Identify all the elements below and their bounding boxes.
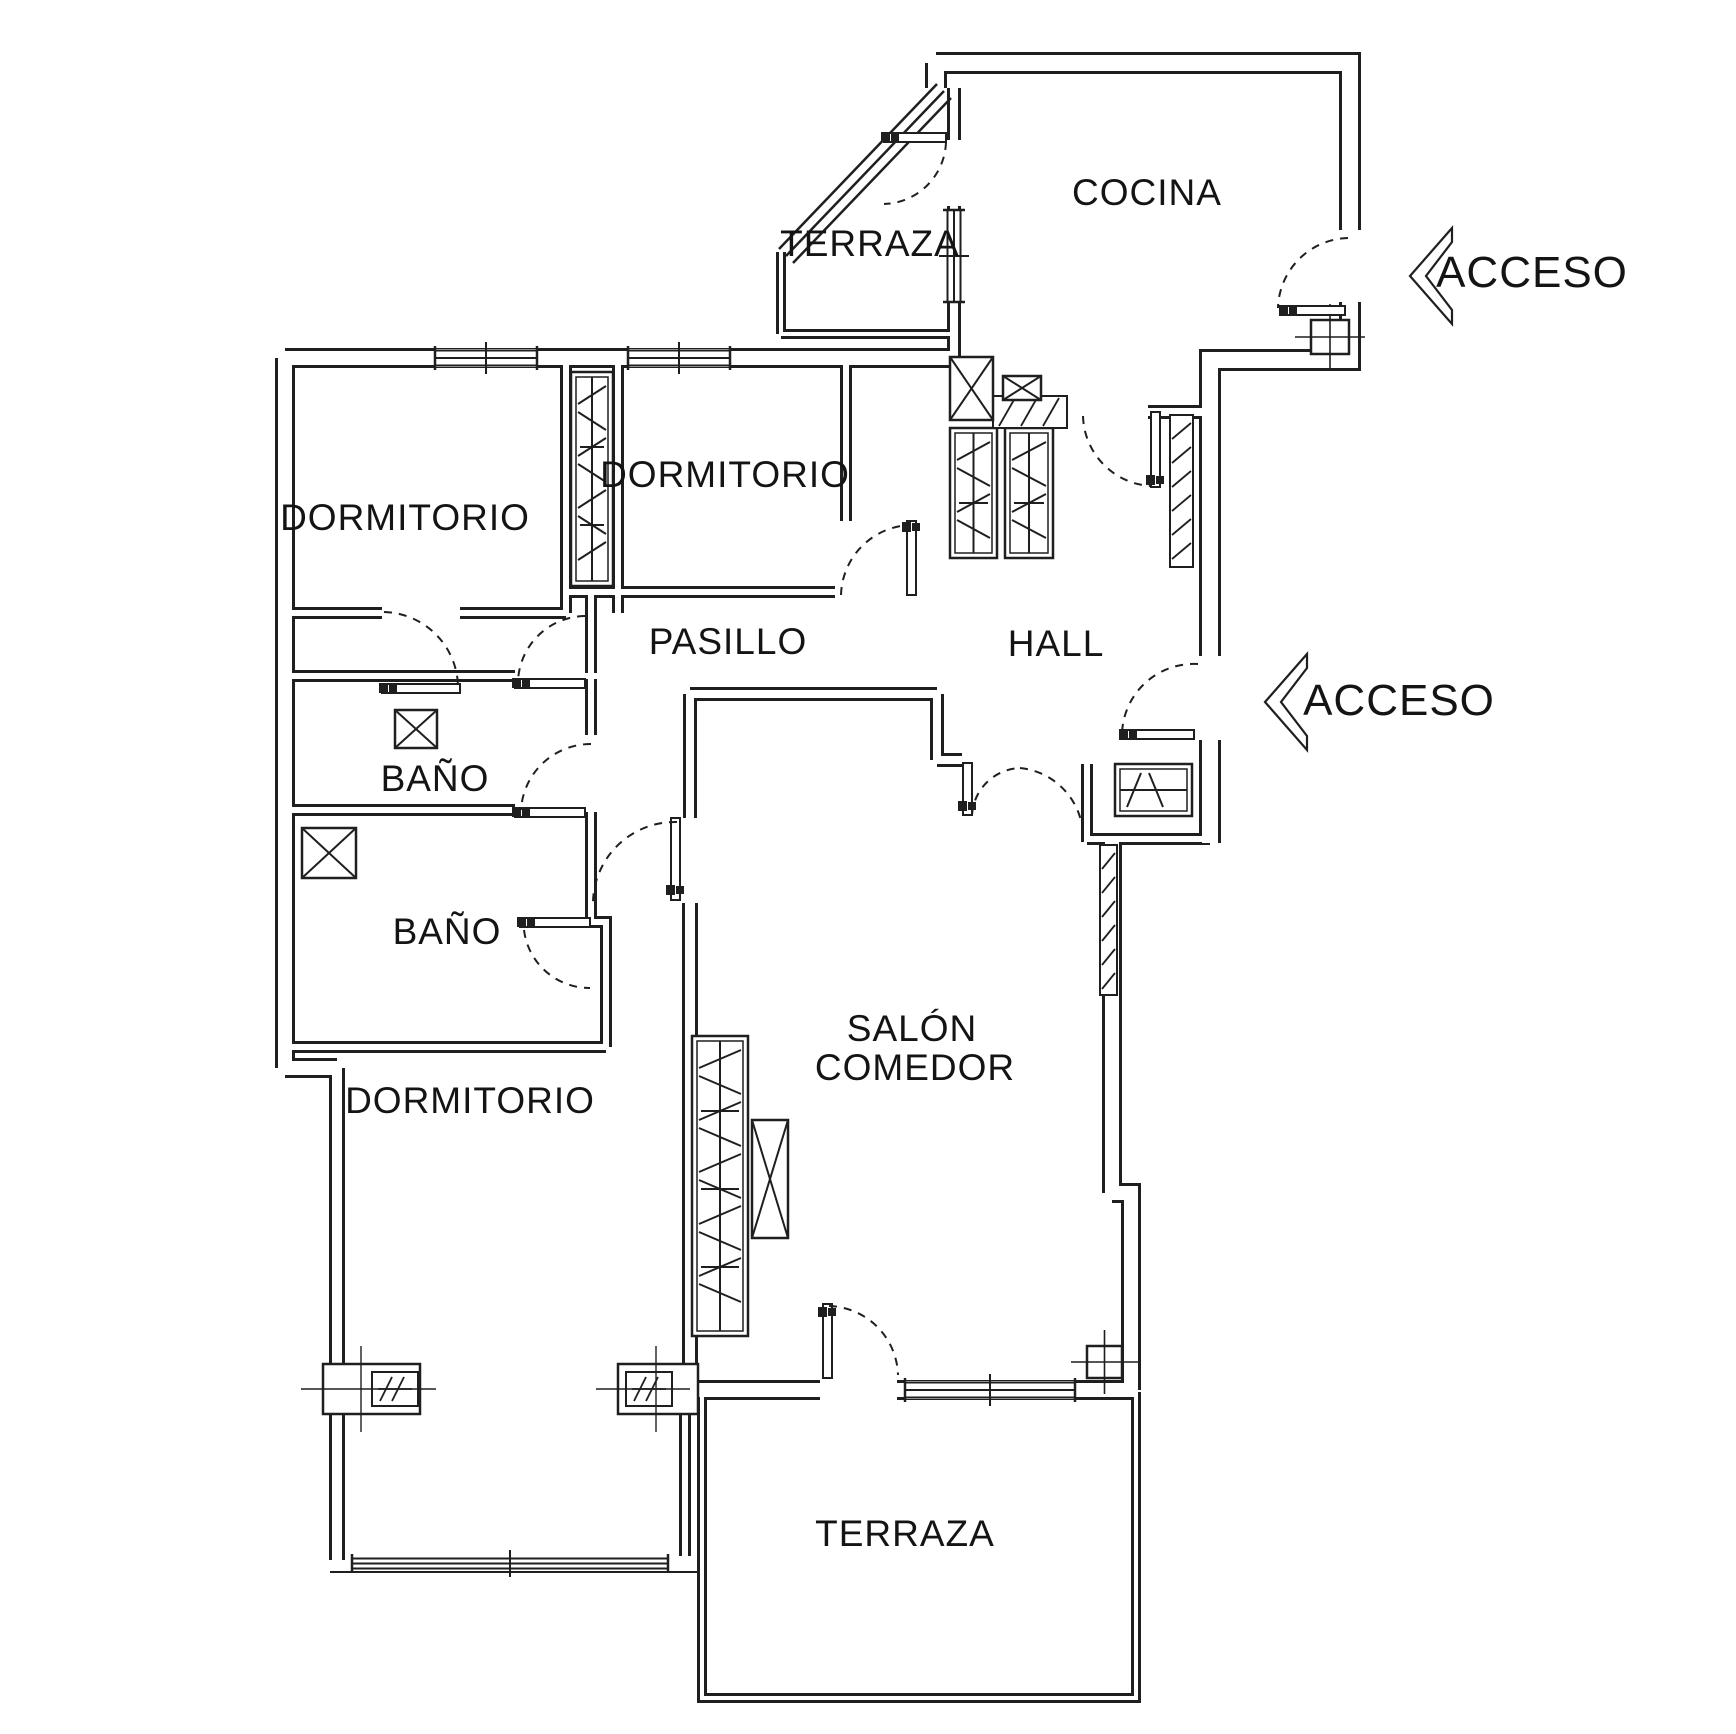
acceso-mid-label: ACCESO — [1303, 676, 1495, 725]
door-hinge — [517, 917, 526, 927]
salon-label-line1: SALÓN — [847, 1008, 977, 1049]
door-hinge — [1146, 475, 1155, 485]
door-hinge — [527, 918, 535, 926]
door-hinge — [512, 807, 521, 817]
door-hinge — [522, 679, 530, 687]
door-hinge — [389, 684, 397, 692]
bano-2-label: BAÑO — [393, 911, 502, 952]
door-hinge — [958, 801, 967, 811]
door-hinge — [1119, 729, 1128, 739]
dormitorio-1-label: DORMITORIO — [280, 497, 530, 538]
pasillo-label: PASILLO — [649, 621, 808, 662]
door-hinge — [676, 886, 684, 894]
door-hinge — [891, 133, 899, 141]
door-hinge — [666, 885, 675, 895]
bano-1-label: BAÑO — [381, 758, 490, 799]
door-hinge — [512, 678, 521, 688]
dormitorio-2-label: DORMITORIO — [600, 454, 850, 495]
door-hinge — [522, 808, 530, 816]
door-hinge — [818, 1307, 827, 1317]
door-hinge — [912, 523, 920, 531]
door-hinge — [902, 522, 911, 532]
terraza-bottom-label: TERRAZA — [815, 1513, 995, 1554]
salon-label-line2: COMEDOR — [815, 1047, 1015, 1088]
door-hinge — [1289, 306, 1297, 314]
cocina-label: COCINA — [1072, 172, 1222, 213]
door-hinge — [1156, 476, 1164, 484]
terraza-top-label: TERRAZA — [780, 223, 960, 264]
door-hinge — [1279, 305, 1288, 315]
door-hinge — [1129, 730, 1137, 738]
floor-plan: TERRAZACOCINAACCESODORMITORIODORMITORIOP… — [0, 0, 1736, 1734]
door-hinge — [379, 683, 388, 693]
door-leaf — [907, 521, 916, 595]
acceso-top-label: ACCESO — [1436, 248, 1628, 297]
dormitorio-3-label: DORMITORIO — [345, 1080, 595, 1121]
floor-plan-page: TERRAZACOCINAACCESODORMITORIODORMITORIOP… — [0, 0, 1736, 1734]
door-hinge — [881, 132, 890, 142]
hall-label: HALL — [1008, 623, 1105, 664]
door-hinge — [828, 1308, 836, 1316]
